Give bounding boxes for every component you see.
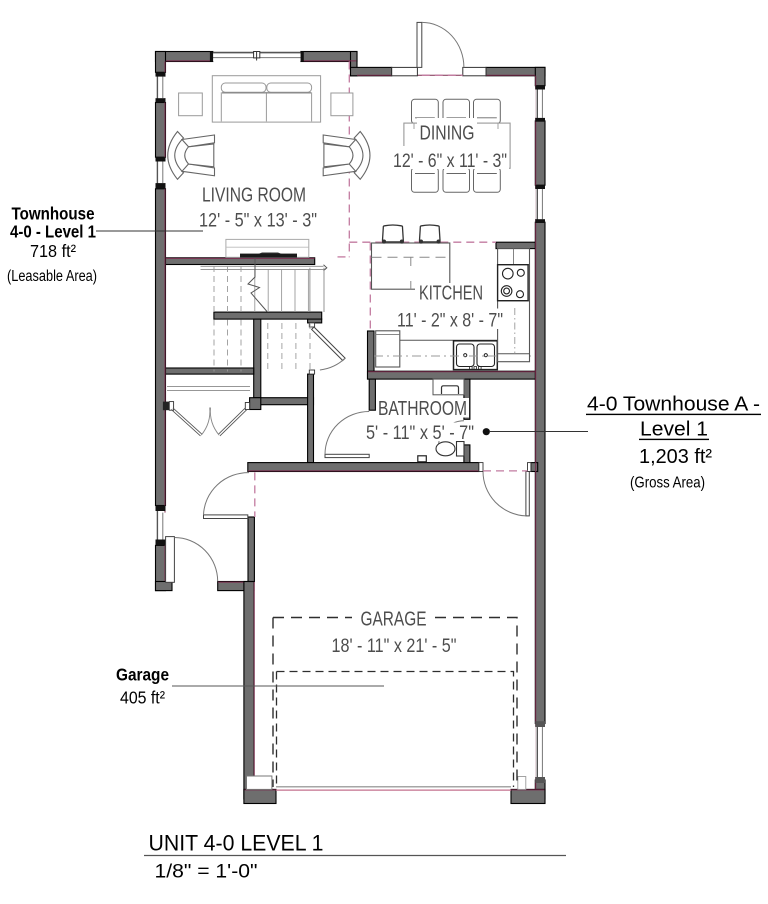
svg-text:(Gross Area): (Gross Area) bbox=[630, 475, 705, 492]
svg-text:12' - 6" x 11' - 3": 12' - 6" x 11' - 3" bbox=[393, 150, 507, 172]
svg-text:18' - 11" x 21' - 5": 18' - 11" x 21' - 5" bbox=[332, 635, 457, 657]
svg-text:4-0 - Level 1: 4-0 - Level 1 bbox=[10, 222, 96, 242]
svg-text:UNIT 4-0 LEVEL 1: UNIT 4-0 LEVEL 1 bbox=[149, 831, 324, 856]
svg-text:LIVING ROOM: LIVING ROOM bbox=[202, 185, 306, 207]
svg-text:4-0 Townhouse A -: 4-0 Townhouse A - bbox=[587, 393, 760, 416]
svg-text:5' - 11" x 5' - 7": 5' - 11" x 5' - 7" bbox=[366, 422, 474, 444]
svg-text:405 ft²: 405 ft² bbox=[120, 688, 165, 708]
svg-text:BATHROOM: BATHROOM bbox=[378, 398, 467, 420]
svg-text:GARAGE: GARAGE bbox=[361, 609, 427, 631]
svg-text:11' - 2" x 8' - 7": 11' - 2" x 8' - 7" bbox=[397, 310, 503, 332]
svg-text:Garage: Garage bbox=[116, 665, 169, 685]
svg-text:Townhouse: Townhouse bbox=[12, 204, 95, 224]
svg-text:(Leasable Area): (Leasable Area) bbox=[7, 268, 97, 285]
svg-text:12' - 5" x 13' - 3": 12' - 5" x 13' - 3" bbox=[199, 210, 317, 232]
svg-text:1,203 ft²: 1,203 ft² bbox=[639, 445, 712, 468]
svg-text:KITCHEN: KITCHEN bbox=[419, 283, 483, 305]
svg-text:Level 1: Level 1 bbox=[640, 418, 708, 441]
svg-text:718 ft²: 718 ft² bbox=[30, 241, 76, 261]
svg-text:1/8" = 1'-0": 1/8" = 1'-0" bbox=[155, 861, 258, 883]
svg-text:DINING: DINING bbox=[420, 123, 475, 145]
